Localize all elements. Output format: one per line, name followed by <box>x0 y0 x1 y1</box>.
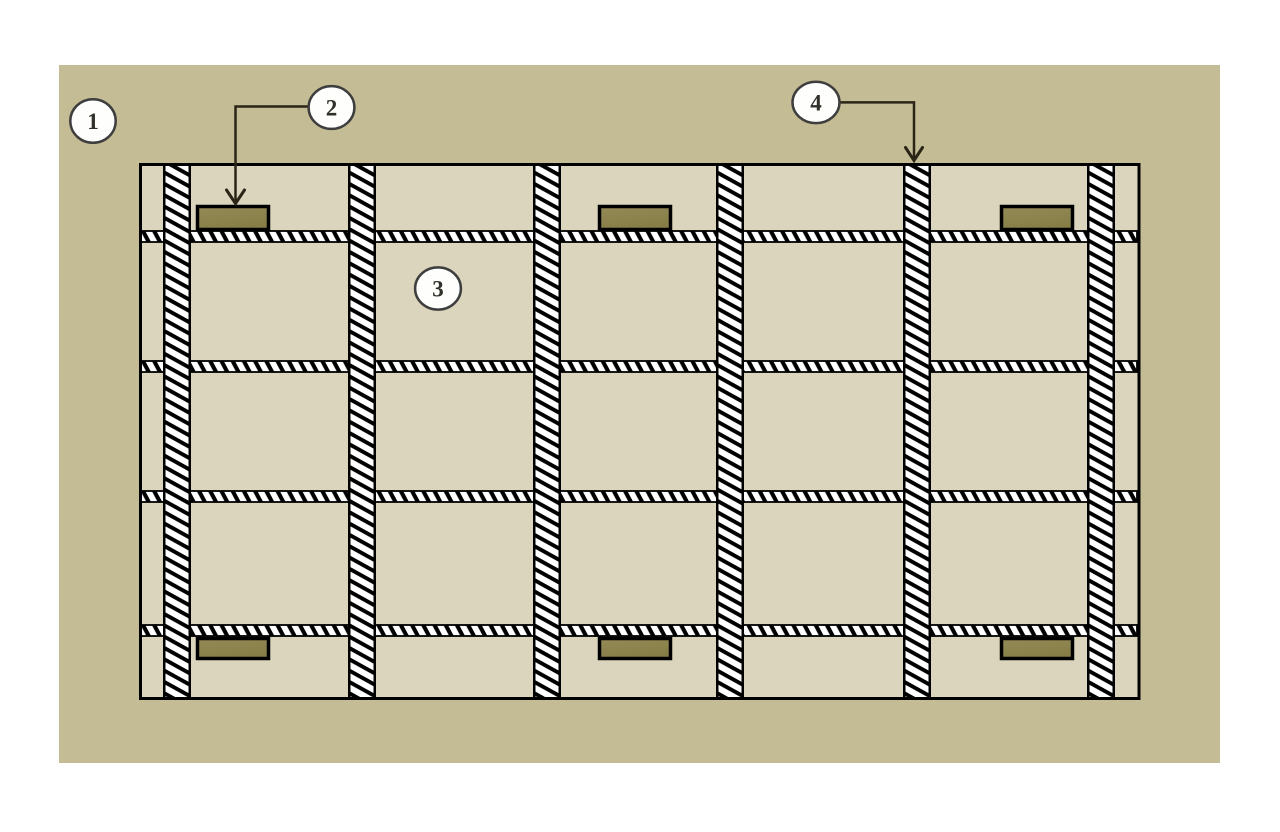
svg-text:3: 3 <box>432 277 444 302</box>
svg-text:1: 1 <box>87 109 99 134</box>
svg-text:2: 2 <box>326 96 338 121</box>
svg-text:4: 4 <box>810 91 822 116</box>
